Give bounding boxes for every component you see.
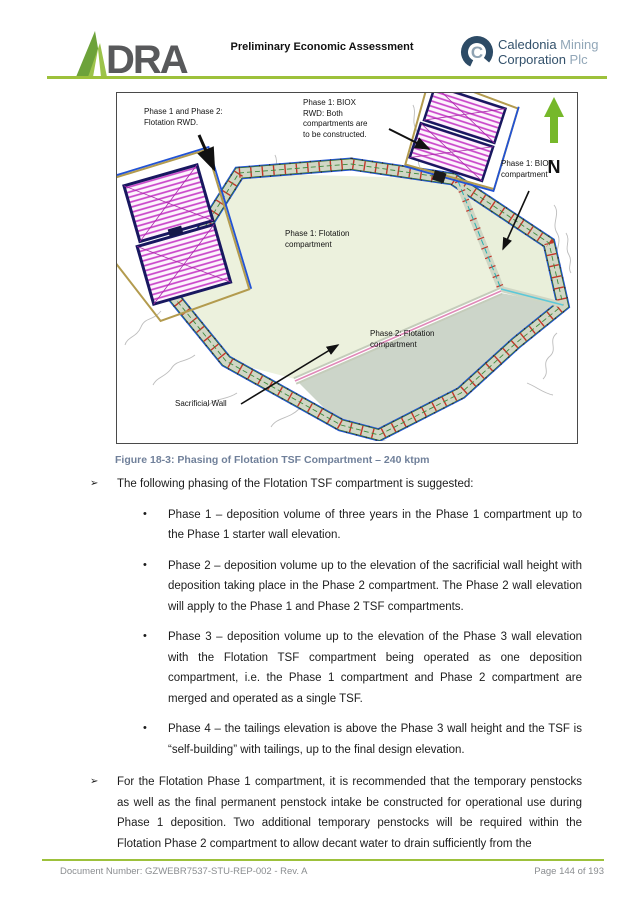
list-item: • Phase 3 – deposition volume up to the … [90, 627, 582, 709]
intro-text: The following phasing of the Flotation T… [117, 474, 582, 495]
label-biox-compartment: Phase 1: BIOX compartment [501, 159, 554, 180]
caledonia-emblem-icon: C [460, 34, 494, 70]
bullet-marker: • [143, 718, 147, 739]
list-item: ➢ The following phasing of the Flotation… [90, 474, 582, 495]
bullet-marker: • [143, 626, 147, 647]
figure-caption: Figure 18-3: Phasing of Flotation TSF Co… [115, 454, 585, 466]
tsf-map: N [117, 93, 575, 441]
label-phase2-flotation: Phase 2: Flotation compartment [370, 329, 434, 350]
label-biox-rwd: Phase 1: BIOX RWD: Both compartments are… [303, 98, 367, 140]
body-text: ➢ The following phasing of the Flotation… [90, 474, 582, 854]
phase1-bullet-text: Phase 1 – deposition volume of three yea… [168, 505, 582, 546]
penstocks-paragraph: For the Flotation Phase 1 compartment, i… [117, 772, 582, 854]
figure-18-3: N Phase 1 and Phase 2: Flotation RWD. Ph… [116, 92, 578, 444]
report-page: DRA Preliminary Economic Assessment C Ca… [0, 0, 644, 911]
label-phase1-flotation: Phase 1: Flotation compartment [285, 229, 349, 250]
caledonia-word-3: Corporation [498, 52, 566, 67]
footer-divider [42, 859, 604, 861]
phase2-bullet-text: Phase 2 – deposition volume up to the el… [168, 556, 582, 618]
caledonia-logo: C Caledonia Mining Corporation Plc [460, 34, 598, 70]
label-sacrificial-wall: Sacrificial Wall [175, 399, 227, 410]
document-number: Document Number: GZWEBR7537-STU-REP-002 … [60, 866, 307, 877]
phase3-bullet-text: Phase 3 – deposition volume up to the el… [168, 627, 582, 709]
caledonia-word-1: Caledonia [498, 37, 557, 52]
list-item: • Phase 4 – the tailings elevation is ab… [90, 719, 582, 760]
header-divider [47, 76, 607, 79]
bullet-marker: • [143, 504, 147, 525]
arrow-bullet-marker: ➢ [90, 474, 98, 495]
page-number: Page 144 of 193 [534, 866, 604, 877]
label-flotation-rwd: Phase 1 and Phase 2: Flotation RWD. [144, 107, 223, 128]
list-item: ➢ For the Flotation Phase 1 compartment,… [90, 772, 582, 854]
dra-logo: DRA [76, 27, 210, 79]
caledonia-emblem-letter: C [471, 43, 483, 62]
phase4-bullet-text: Phase 4 – the tailings elevation is abov… [168, 719, 582, 760]
arrow-bullet-marker: ➢ [90, 772, 98, 793]
caledonia-logo-text: Caledonia Mining Corporation Plc [498, 37, 598, 67]
bullet-marker: • [143, 555, 147, 576]
caledonia-word-2: Mining [557, 37, 599, 52]
list-item: • Phase 2 – deposition volume up to the … [90, 556, 582, 618]
list-item: • Phase 1 – deposition volume of three y… [90, 505, 582, 546]
caledonia-word-4: Plc [566, 52, 588, 67]
